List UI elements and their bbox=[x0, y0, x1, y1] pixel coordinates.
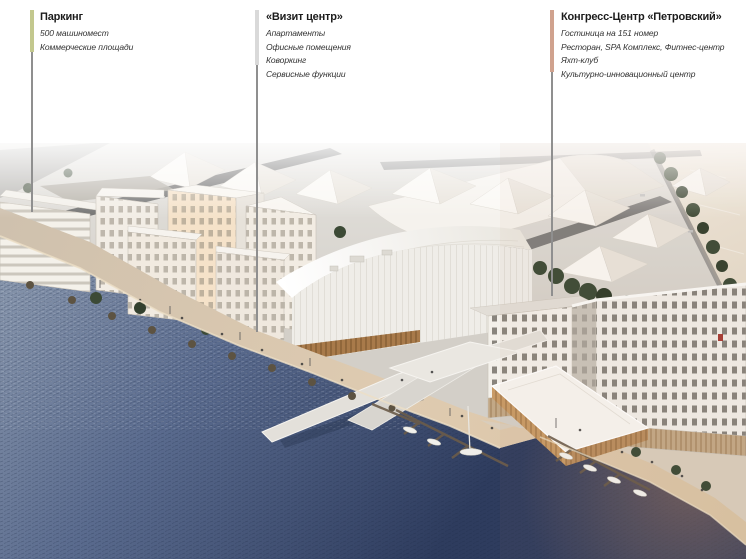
annotation-feature: Гостиница на 151 номер bbox=[561, 27, 724, 41]
annotation-feature: Сервисные функции bbox=[266, 68, 351, 82]
annotation-feature: Коммерческие площади bbox=[40, 41, 133, 55]
annotation-visit-center: «Визит центр» Апартаменты Офисные помеще… bbox=[266, 11, 351, 81]
annotation-congress-center: Конгресс-Центр «Петровский» Гостиница на… bbox=[561, 11, 724, 81]
leader-cap bbox=[550, 10, 554, 72]
leader-cap bbox=[255, 10, 259, 65]
annotation-title: Конгресс-Центр «Петровский» bbox=[561, 11, 724, 23]
annotation-feature: Культурно-инновационный центр bbox=[561, 68, 724, 82]
annotation-parking: Паркинг 500 машиномест Коммерческие площ… bbox=[40, 11, 133, 54]
annotation-feature: 500 машиномест bbox=[40, 27, 133, 41]
warm-light-wash bbox=[500, 143, 746, 559]
annotation-title: «Визит центр» bbox=[266, 11, 351, 23]
annotation-feature: Яхт-клуб bbox=[561, 54, 724, 68]
annotation-feature: Офисные помещения bbox=[266, 41, 351, 55]
annotation-title: Паркинг bbox=[40, 11, 133, 23]
annotation-feature: Ресторан, SPA Комплекс, Фитнес-центр bbox=[561, 41, 724, 55]
architectural-render bbox=[0, 0, 746, 559]
annotation-feature: Апартаменты bbox=[266, 27, 351, 41]
leader-cap bbox=[30, 10, 34, 52]
masterplan-slide: Паркинг 500 машиномест Коммерческие площ… bbox=[0, 0, 746, 559]
annotation-feature: Коворкинг bbox=[266, 54, 351, 68]
